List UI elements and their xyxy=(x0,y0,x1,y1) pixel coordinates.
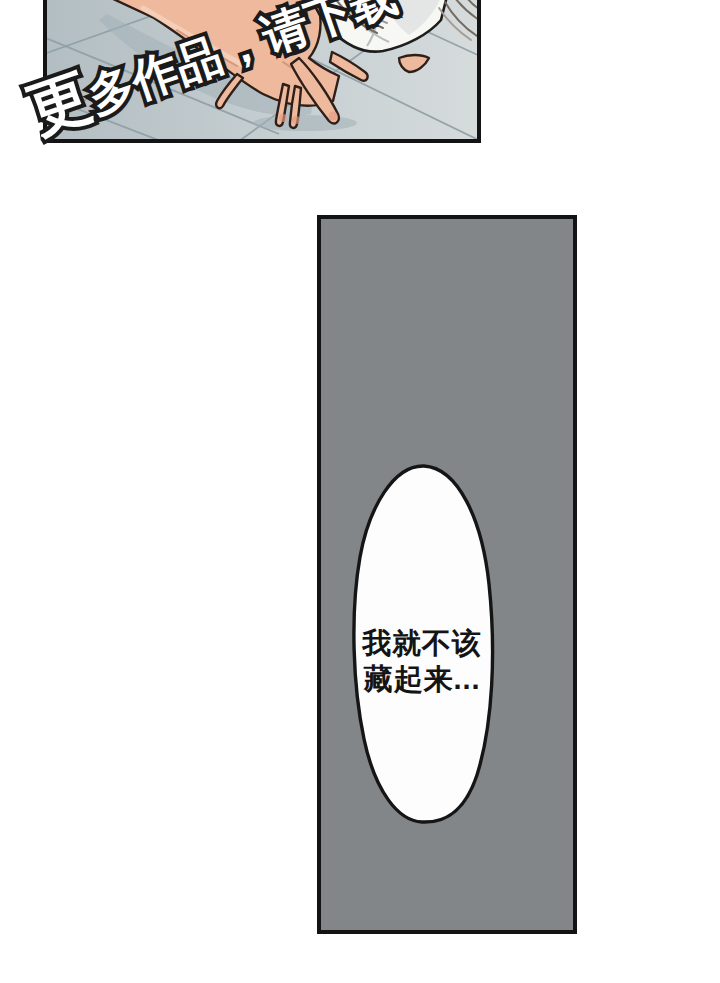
comic-page: 更多作品，请下载 我就不该 藏起来... xyxy=(0,0,720,983)
speech-bubble-text: 我就不该 藏起来... xyxy=(337,625,507,697)
speech-line-2: 藏起来... xyxy=(337,661,507,697)
fingertip-blush xyxy=(279,114,287,122)
fingertip-blush xyxy=(329,112,338,121)
speech-line-1: 我就不该 xyxy=(337,625,507,661)
speech-bubble xyxy=(321,219,573,930)
fingertip-blush xyxy=(292,116,300,124)
comic-panel-gray: 我就不该 藏起来... xyxy=(317,215,577,934)
